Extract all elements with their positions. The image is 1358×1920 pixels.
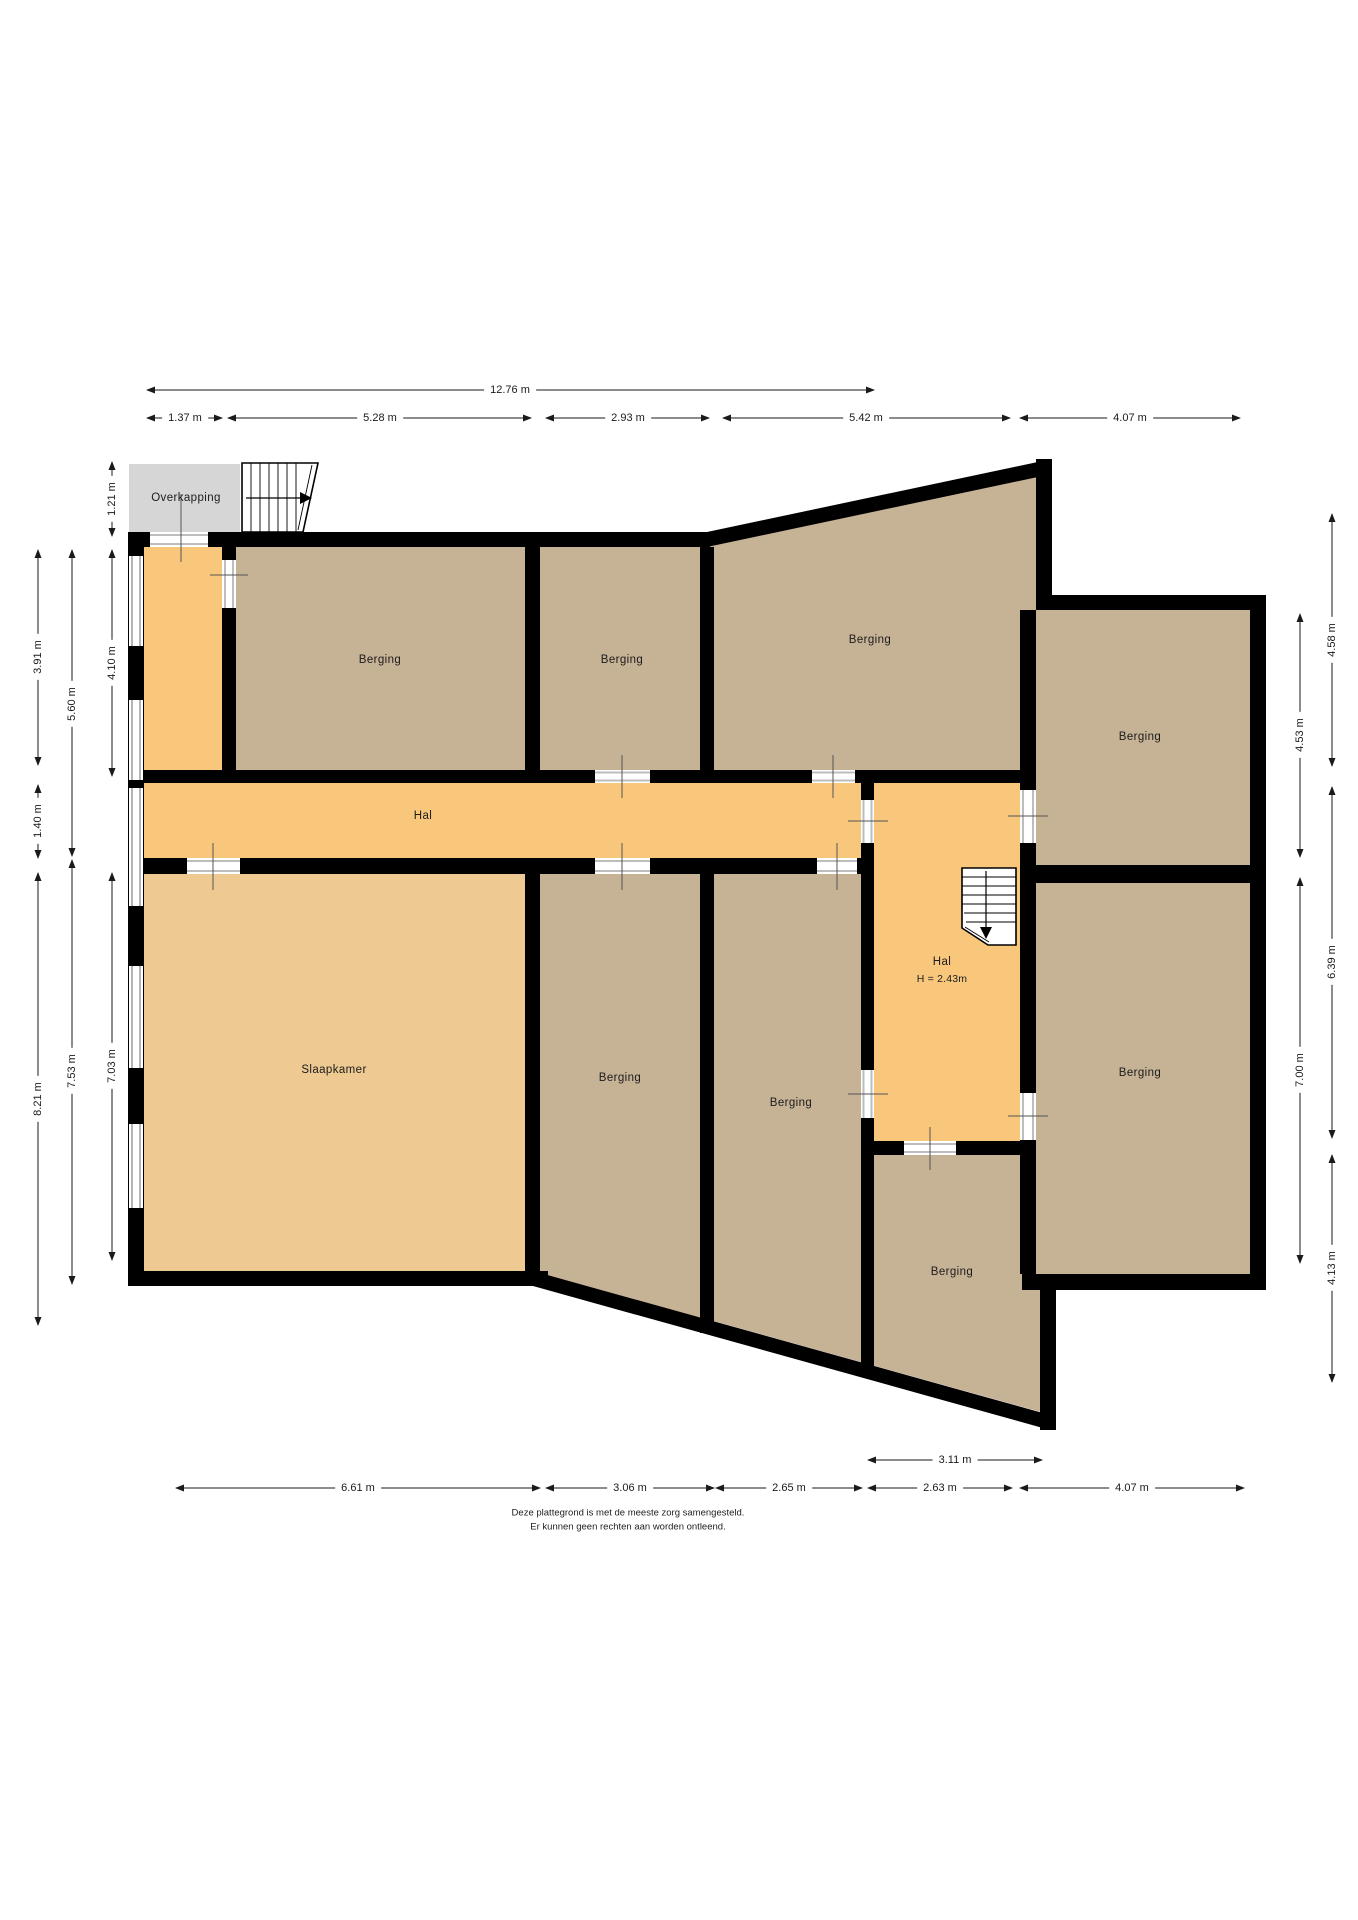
room-label-berging-center-right: Berging (770, 1097, 812, 1109)
footer-disclaimer-line2: Er kunnen geen rechten aan worden ontlee… (530, 1522, 725, 1533)
dim-label-left-753: 7.53 m (66, 1048, 78, 1094)
room-label-slaapkamer: Slaapkamer (301, 1064, 366, 1076)
dim-label-right-453: 4.53 m (1294, 712, 1306, 758)
dim-label-left-703: 7.03 m (106, 1043, 118, 1089)
dim-label-bottom-263: 2.63 m (917, 1482, 963, 1494)
window-icon (129, 788, 143, 906)
dim-label-bottom-661: 6.61 m (335, 1482, 381, 1494)
dim-label-top-5: 4.07 m (1107, 412, 1153, 424)
dim-label-right-413: 4.13 m (1326, 1245, 1338, 1291)
dim-label-right-639: 6.39 m (1326, 939, 1338, 985)
dim-label-right-458: 4.58 m (1326, 617, 1338, 663)
dim-label-bottom-265: 2.65 m (766, 1482, 812, 1494)
window-icon (129, 556, 143, 646)
dim-label-top-1: 1.37 m (162, 412, 208, 424)
dim-label-left-140: 1.40 m (32, 798, 44, 844)
room-hal-entry-strip (144, 540, 228, 790)
room-label-berging-bottom: Berging (931, 1266, 973, 1278)
wall-top (128, 532, 710, 547)
stairs-hal (962, 868, 1016, 945)
dim-label-top-2: 5.28 m (357, 412, 403, 424)
wall-top-divider-2 (700, 547, 714, 783)
dim-label-top-4: 5.42 m (843, 412, 889, 424)
floorplan-drawing (0, 0, 1358, 1920)
wall-center-divider (700, 858, 714, 1333)
dim-label-bottom-311: 3.11 m (933, 1454, 978, 1466)
window-icon (129, 1124, 143, 1208)
dim-label-left-410: 4.10 m (106, 640, 118, 686)
wall-rightwing-bottom (1022, 1274, 1266, 1290)
room-label-berging-top-left: Berging (359, 654, 401, 666)
window-icon (129, 700, 143, 780)
wall-apex (1036, 459, 1052, 610)
wall-rightwing-right (1250, 595, 1266, 1290)
room-berging-top-right (707, 466, 1045, 775)
dim-label-left-821: 8.21 m (32, 1076, 44, 1122)
wall-corridor-top (144, 770, 1036, 783)
room-label-hal-corridor: Hal (414, 810, 432, 822)
room-label-berging-top-right: Berging (849, 634, 891, 646)
room-berging-center-left (533, 866, 707, 1319)
dim-label-left-391: 3.91 m (32, 634, 44, 680)
room-label-berging-right-upper: Berging (1119, 731, 1161, 743)
footer-disclaimer-line1: Deze plattegrond is met de meeste zorg s… (512, 1508, 745, 1519)
wall-top-divider-1 (525, 547, 540, 770)
room-label-overkapping: Overkapping (151, 492, 221, 504)
window-icon (129, 966, 143, 1068)
wall-protrusion-right (1040, 1278, 1056, 1430)
room-label-berging-right-lower: Berging (1119, 1067, 1161, 1079)
room-berging-center-right (710, 866, 868, 1364)
dim-label-top-overall: 12.76 m (484, 384, 536, 396)
dim-label-right-700: 7.00 m (1294, 1047, 1306, 1093)
room-hal-corridor (136, 780, 881, 862)
dim-label-bottom-407: 4.07 m (1109, 1482, 1155, 1494)
room-label-hal-lower-height: H = 2.43m (917, 973, 968, 985)
room-label-berging-top-mid: Berging (601, 654, 643, 666)
wall-rightwing-left (1020, 610, 1036, 1274)
dim-label-left-560: 5.60 m (66, 681, 78, 727)
wall-rightwing-top (1036, 595, 1266, 610)
stairs-top (242, 463, 318, 532)
wall-corridor-bottom (144, 858, 874, 874)
wall-rightwing-divider (1036, 865, 1250, 883)
dim-label-left-121: 1.21 m (106, 476, 118, 522)
floorplan-page: Overkapping Berging Berging Berging Berg… (0, 0, 1358, 1920)
room-label-hal-lower: Hal (933, 956, 951, 968)
wall-slaapkamer-bottom (128, 1271, 548, 1286)
dim-label-top-3: 2.93 m (605, 412, 651, 424)
room-label-berging-center-left: Berging (599, 1072, 641, 1084)
dim-label-bottom-306: 3.06 m (607, 1482, 653, 1494)
wall-slaapkamer-right (525, 858, 540, 1271)
